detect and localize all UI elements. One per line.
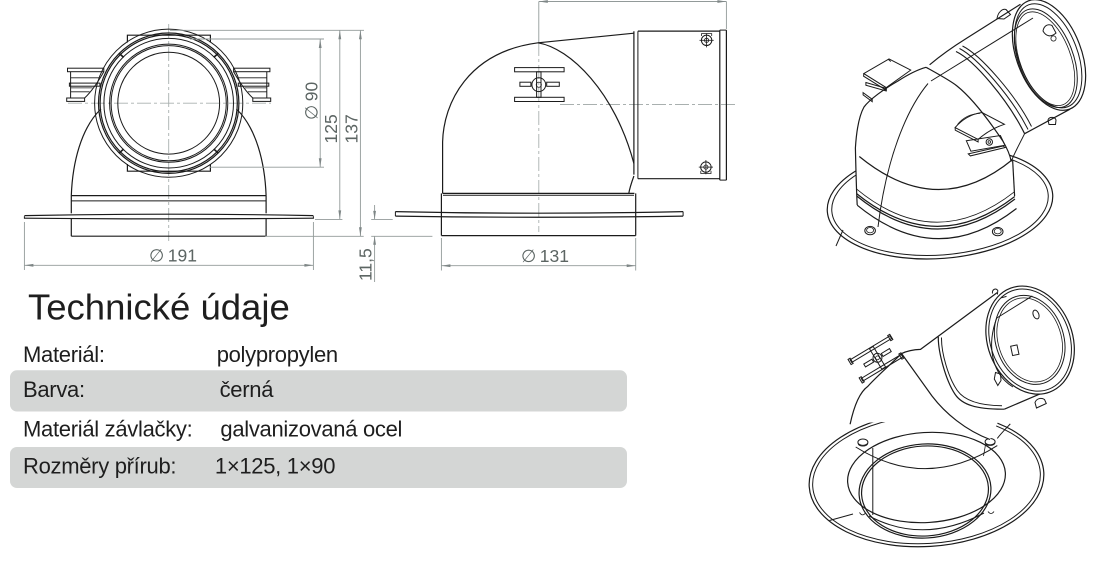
svg-text:galvanizovaná ocel: galvanizovaná ocel — [220, 417, 402, 442]
svg-text:137: 137 — [342, 114, 362, 143]
svg-text:Materiál závlačky:: Materiál závlačky: — [23, 417, 192, 442]
svg-text:Technické údaje: Technické údaje — [28, 286, 290, 327]
svg-text:∅ 90: ∅ 90 — [302, 82, 322, 120]
svg-text:Materiál:: Materiál: — [23, 342, 105, 367]
svg-text:polypropylen: polypropylen — [217, 342, 338, 367]
svg-text:Barva:: Barva: — [23, 377, 85, 402]
svg-text:11,5: 11,5 — [356, 248, 376, 281]
svg-text:125: 125 — [321, 114, 341, 143]
svg-text:∅ 131: ∅ 131 — [521, 246, 569, 266]
svg-text:černá: černá — [220, 377, 275, 402]
svg-text:∅ 191: ∅ 191 — [149, 246, 197, 266]
svg-text:1×125, 1×90: 1×125, 1×90 — [215, 454, 335, 479]
svg-text:Rozměry přírub:: Rozměry přírub: — [23, 454, 176, 479]
